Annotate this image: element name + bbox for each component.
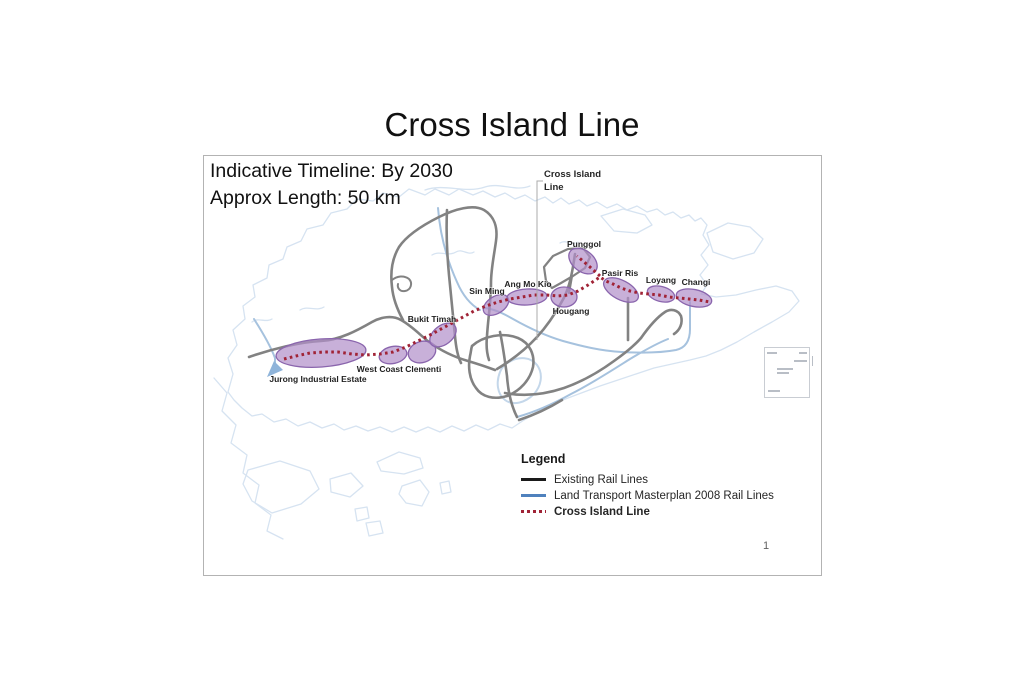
page-number: 1 (756, 540, 776, 552)
legend-item-cross-island-line: Cross Island Line (521, 505, 774, 518)
masterplan-rail-line-swatch (521, 494, 546, 497)
river (300, 307, 324, 310)
eastern-line (505, 338, 641, 395)
station-label: Loyang (646, 275, 676, 285)
station-label: Sin Ming (469, 286, 504, 296)
southern-island (330, 473, 363, 497)
sentosa-island (377, 452, 423, 474)
inset-fineprint (768, 390, 780, 392)
legend-title: Legend (521, 452, 774, 466)
legend: Legend Existing Rail Lines Land Transpor… (521, 452, 774, 521)
cross-island-line-swatch (521, 510, 546, 514)
inset-fineprint (777, 372, 789, 374)
tuas-industrial-coast (214, 378, 283, 539)
existing-rail-line-swatch (521, 478, 546, 481)
legend-item-existing-rail: Existing Rail Lines (521, 473, 774, 486)
legend-item-label: Existing Rail Lines (554, 474, 648, 486)
station-area-loyang (646, 283, 677, 305)
station-label: Changi (682, 277, 711, 287)
station-label: Punggol (567, 239, 601, 249)
station-areas (275, 243, 713, 370)
southern-island (440, 481, 451, 494)
callout-label: Cross Island Line (544, 168, 606, 194)
reservoir (432, 251, 474, 255)
existing-rail-lines (249, 207, 682, 420)
masterplan-west-extension (254, 319, 275, 364)
kranji-spur (392, 276, 411, 291)
approx-length-text: Approx Length: 50 km (210, 185, 453, 212)
legend-item-label: Cross Island Line (554, 506, 650, 518)
southern-island (355, 507, 369, 521)
inset-fineprint (777, 368, 793, 370)
legend-item-label: Land Transport Masterplan 2008 Rail Line… (554, 490, 774, 502)
indicative-timeline-text: Indicative Timeline: By 2030 (210, 158, 453, 185)
station-label: West Coast Clementi (357, 364, 441, 374)
station-label: Jurong Industrial Estate (269, 374, 367, 384)
pulau-ubin (601, 209, 652, 233)
pulau-tekong (707, 223, 763, 259)
singapore-rail-map: Jurong Industrial Estate West Coast Clem… (0, 0, 1024, 683)
station-label: Pasir Ris (602, 268, 639, 278)
jurong-island (243, 461, 319, 513)
station-label: Ang Mo Kio (504, 279, 551, 289)
southern-island (399, 480, 429, 506)
station-area-ang-mo-kio (507, 288, 548, 306)
inset-fineprint (812, 356, 814, 366)
inset-fineprint (799, 352, 807, 354)
inset-fineprint (794, 360, 807, 362)
callout-leader-line (537, 181, 543, 340)
masterplan-line (517, 339, 668, 417)
info-block: Indicative Timeline: By 2030 Approx Leng… (210, 158, 453, 211)
legend-item-masterplan-rail: Land Transport Masterplan 2008 Rail Line… (521, 489, 774, 502)
inset-fineprint (767, 352, 777, 354)
southern-island (366, 521, 383, 536)
station-label: Hougang (553, 306, 590, 316)
changi-branch (641, 310, 682, 338)
station-label: Bukit Timah (408, 314, 457, 324)
map-inset-scale-box (764, 347, 810, 398)
city-line (500, 332, 517, 417)
